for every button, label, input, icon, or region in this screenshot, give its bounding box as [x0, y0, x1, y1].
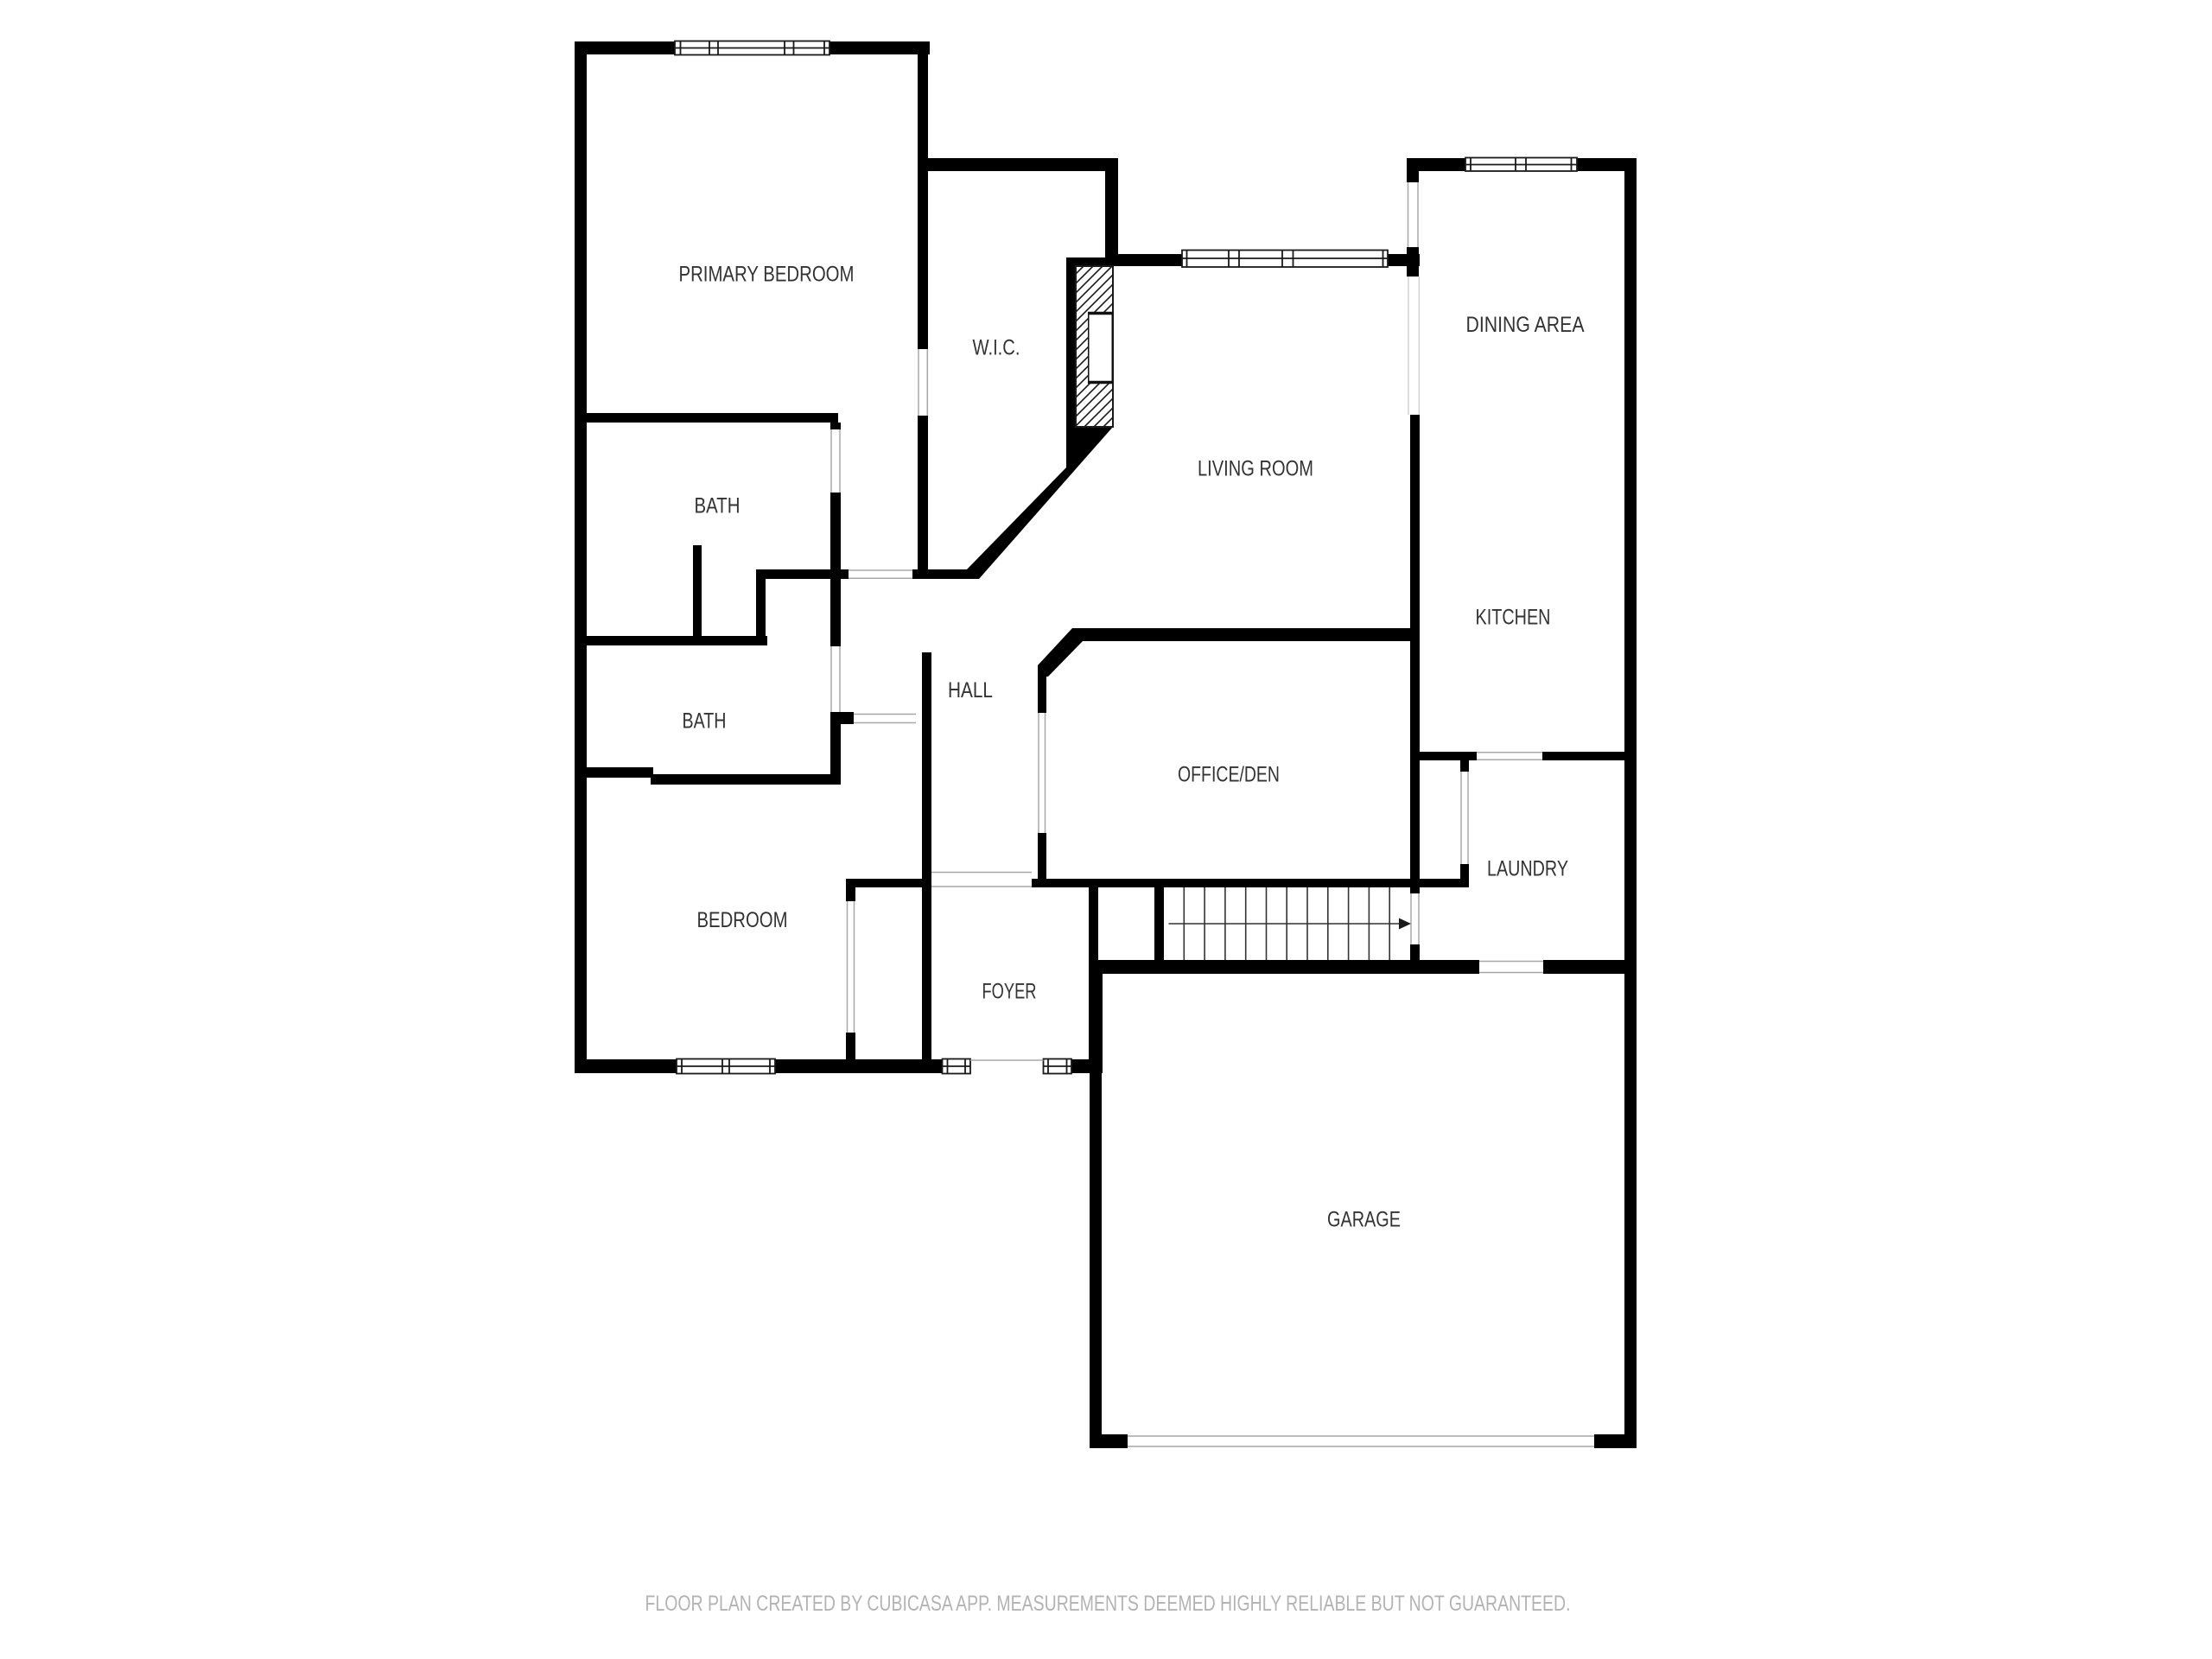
svg-text:W.I.C.: W.I.C. — [973, 336, 1020, 360]
svg-text:BEDROOM: BEDROOM — [697, 908, 788, 932]
svg-text:BATH: BATH — [683, 709, 727, 734]
svg-text:PRIMARY BEDROOM: PRIMARY BEDROOM — [679, 263, 855, 287]
svg-text:LAUNDRY: LAUNDRY — [1487, 857, 1568, 881]
svg-text:FOYER: FOYER — [982, 980, 1037, 1004]
svg-text:OFFICE/DEN: OFFICE/DEN — [1178, 763, 1280, 787]
svg-text:KITCHEN: KITCHEN — [1476, 606, 1551, 630]
svg-text:HALL: HALL — [948, 678, 993, 702]
svg-text:LIVING ROOM: LIVING ROOM — [1198, 457, 1313, 481]
svg-text:FLOOR PLAN CREATED BY CUBICASA: FLOOR PLAN CREATED BY CUBICASA APP. MEAS… — [645, 1592, 1571, 1616]
svg-text:BATH: BATH — [695, 494, 741, 518]
svg-text:DINING AREA: DINING AREA — [1466, 313, 1585, 337]
svg-text:GARAGE: GARAGE — [1327, 1208, 1401, 1232]
